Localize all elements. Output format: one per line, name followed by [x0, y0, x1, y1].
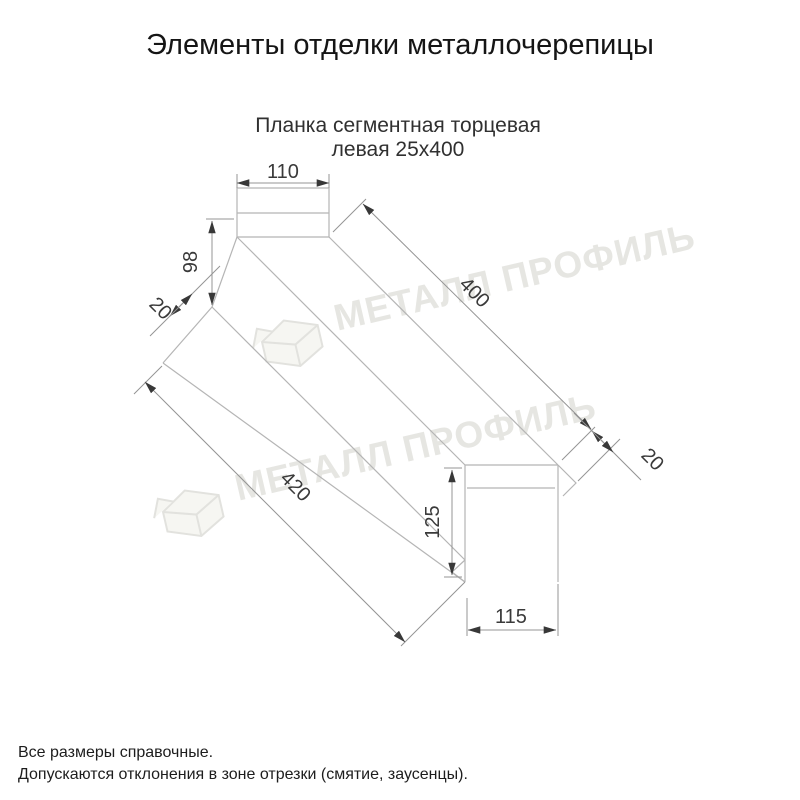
part-edge-bottom — [163, 363, 465, 582]
metal-profil-logo-icon — [150, 483, 227, 545]
page-title: Элементы отделки металлочерепицы — [146, 29, 654, 61]
footer-note-line1: Все размеры справочные. — [18, 744, 213, 761]
part-tip-fold — [452, 560, 465, 582]
catalog-drawing-page: МЕТАЛЛ ПРОФИЛЬ МЕТАЛЛ ПРОФИЛЬ Элементы о… — [0, 0, 800, 800]
technical-drawing-canvas: МЕТАЛЛ ПРОФИЛЬ МЕТАЛЛ ПРОФИЛЬ Элементы о… — [0, 0, 800, 800]
watermark-text: МЕТАЛЛ ПРОФИЛЬ — [330, 215, 699, 338]
dimension-value: 115 — [495, 606, 527, 628]
dimension-value: 125 — [422, 505, 444, 538]
footer-note-line2: Допускаются отклонения в зоне отрезки (с… — [18, 766, 468, 783]
part-right-fold-tab — [558, 465, 576, 496]
part-outline — [163, 188, 576, 582]
dimension-end-height: 125 — [422, 468, 462, 577]
dimension-left-height: 98 — [180, 219, 234, 305]
drawing-subtitle-line1: Планка сегментная торцевая — [255, 114, 541, 137]
dimension-top-width: 110 — [237, 161, 329, 188]
part-left-slant-edge — [212, 237, 237, 307]
drawing-subtitle-line2: левая 25х400 — [332, 138, 465, 161]
extension-lines — [444, 468, 462, 577]
dimension-value: 20 — [637, 444, 668, 475]
extension-line — [578, 439, 620, 481]
dimension-value: 98 — [180, 251, 202, 273]
dimension-left-fold: 20 — [145, 266, 220, 336]
part-end-plate — [465, 465, 558, 582]
dimension-value: 20 — [145, 293, 176, 324]
metal-profil-logo-icon — [249, 313, 326, 375]
dimension-value: 110 — [267, 161, 299, 183]
dimension-end-width: 115 — [467, 584, 558, 636]
arrow-line — [592, 431, 613, 452]
